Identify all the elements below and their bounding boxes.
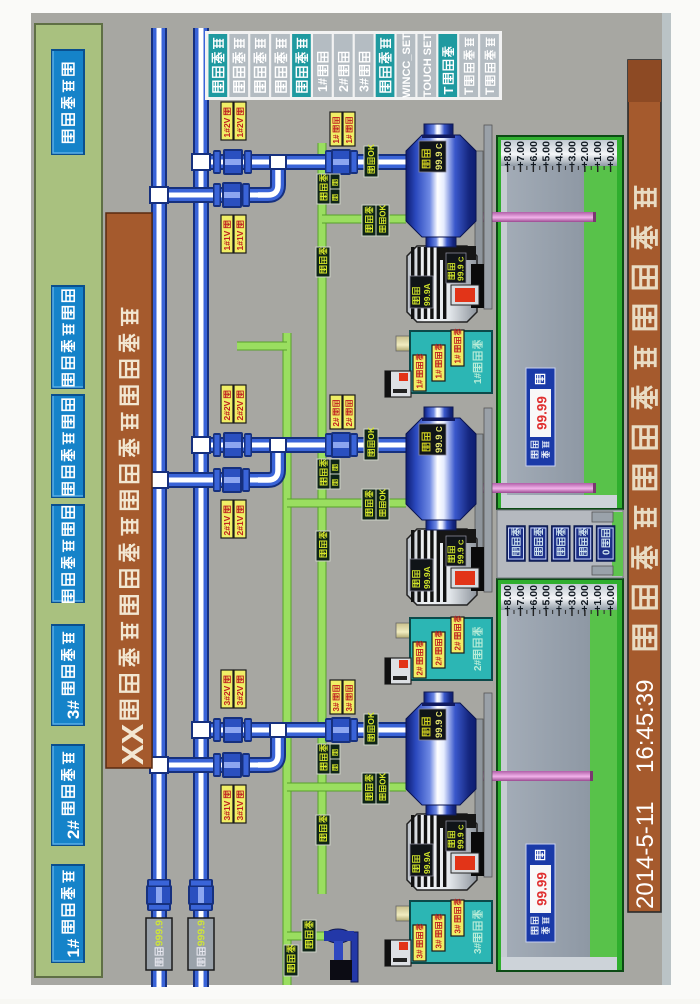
svg-text:2#: 2# <box>434 656 443 665</box>
svg-text:OK: OK <box>378 772 387 784</box>
svg-text:+0.00: +0.00 <box>605 141 617 168</box>
svg-text:T: T <box>441 87 456 95</box>
svg-text:1#: 1# <box>64 938 83 957</box>
svg-text:3#2V: 3#2V <box>235 685 245 705</box>
svg-text:+3.00: +3.00 <box>566 141 578 168</box>
svg-text:3#: 3# <box>415 949 424 958</box>
svg-text:T: T <box>462 87 476 95</box>
svg-text:99.9A: 99.9A <box>422 283 432 306</box>
svg-text:99.9: 99.9 <box>456 264 466 281</box>
svg-text:C: C <box>457 824 466 830</box>
svg-text:3#1V: 3#1V <box>222 800 232 820</box>
svg-text:2#1V: 2#1V <box>235 515 245 535</box>
svg-text:2#: 2# <box>415 666 424 675</box>
svg-text:2#: 2# <box>345 417 354 426</box>
svg-text:1#2V: 1#2V <box>235 117 245 137</box>
svg-text:99.9: 99.9 <box>434 152 445 171</box>
svg-text:+1.00: +1.00 <box>592 585 604 612</box>
svg-text:99.9: 99.9 <box>434 720 445 739</box>
svg-text:C: C <box>435 143 444 149</box>
svg-text:2#2V: 2#2V <box>222 400 232 420</box>
svg-text:OK: OK <box>366 711 376 725</box>
svg-text:999.9: 999.9 <box>154 920 166 946</box>
svg-text:1#1V: 1#1V <box>222 230 232 250</box>
svg-text:XX: XX <box>115 723 150 765</box>
svg-text:99.9A: 99.9A <box>422 566 432 589</box>
svg-text:C: C <box>435 711 444 717</box>
svg-text:99.99: 99.99 <box>535 396 550 430</box>
svg-text:WINCC_SET: WINCC_SET <box>401 33 413 98</box>
svg-text:OK: OK <box>366 426 376 440</box>
svg-text:3#1V: 3#1V <box>235 800 245 820</box>
svg-text:2014-5-11: 2014-5-11 <box>632 801 659 909</box>
svg-text:1#: 1# <box>473 372 484 384</box>
svg-text:99.9: 99.9 <box>456 832 466 849</box>
svg-text:+2.00: +2.00 <box>579 585 591 612</box>
svg-text:+5.00: +5.00 <box>541 585 553 612</box>
svg-text:2#: 2# <box>64 820 83 839</box>
svg-text:3#: 3# <box>64 700 83 719</box>
svg-text:OK: OK <box>378 204 387 216</box>
svg-text:3#: 3# <box>453 924 462 933</box>
svg-text:1#: 1# <box>345 134 354 143</box>
svg-text:C: C <box>435 426 444 432</box>
svg-text:1#: 1# <box>453 354 462 363</box>
svg-text:1#: 1# <box>434 369 443 378</box>
svg-text:+6.00: +6.00 <box>528 585 540 612</box>
svg-text:T: T <box>483 87 497 95</box>
svg-text:2#1V: 2#1V <box>222 515 232 535</box>
svg-text:2#: 2# <box>473 659 484 671</box>
svg-text:3#: 3# <box>358 78 372 92</box>
svg-text:3#: 3# <box>332 702 341 711</box>
svg-text:+6.00: +6.00 <box>528 141 540 168</box>
svg-text:0: 0 <box>602 549 613 555</box>
svg-text:2#: 2# <box>332 417 341 426</box>
svg-text:2#2V: 2#2V <box>235 400 245 420</box>
svg-text:+5.00: +5.00 <box>541 141 553 168</box>
svg-text:C: C <box>457 256 466 262</box>
svg-text:2#: 2# <box>453 641 462 650</box>
svg-text:99.9: 99.9 <box>434 435 445 454</box>
svg-text:+1.00: +1.00 <box>592 141 604 168</box>
svg-text:C: C <box>457 539 466 545</box>
svg-text:+8.00: +8.00 <box>502 585 514 612</box>
svg-text:1#: 1# <box>332 134 341 143</box>
svg-text:+8.00: +8.00 <box>502 141 514 168</box>
svg-text:+2.00: +2.00 <box>579 141 591 168</box>
svg-text:OK: OK <box>378 488 387 500</box>
svg-text:1#: 1# <box>316 78 330 92</box>
svg-text:1#2V: 1#2V <box>222 117 232 137</box>
svg-text:3#2V: 3#2V <box>222 685 232 705</box>
svg-text:3#: 3# <box>473 942 484 954</box>
svg-text:99.99: 99.99 <box>535 872 550 906</box>
svg-text:1#: 1# <box>415 379 424 388</box>
svg-text:+3.00: +3.00 <box>566 585 578 612</box>
svg-text:16:45:39: 16:45:39 <box>632 680 659 773</box>
svg-text:OK: OK <box>366 143 376 157</box>
svg-text:2#: 2# <box>337 78 351 92</box>
svg-text:1#1V: 1#1V <box>235 230 245 250</box>
svg-text:99.9: 99.9 <box>456 547 466 564</box>
svg-text:3#: 3# <box>345 702 354 711</box>
svg-text:3#: 3# <box>434 939 443 948</box>
svg-text:+0.00: +0.00 <box>605 585 617 612</box>
svg-text:999.9: 999.9 <box>196 920 208 946</box>
svg-text:+4.00: +4.00 <box>554 141 566 168</box>
svg-text:+4.00: +4.00 <box>554 585 566 612</box>
svg-text:99.9A: 99.9A <box>422 851 432 874</box>
svg-text:TOUCH SET: TOUCH SET <box>422 34 434 98</box>
svg-text:+7.00: +7.00 <box>515 585 527 612</box>
svg-text:+7.00: +7.00 <box>515 141 527 168</box>
